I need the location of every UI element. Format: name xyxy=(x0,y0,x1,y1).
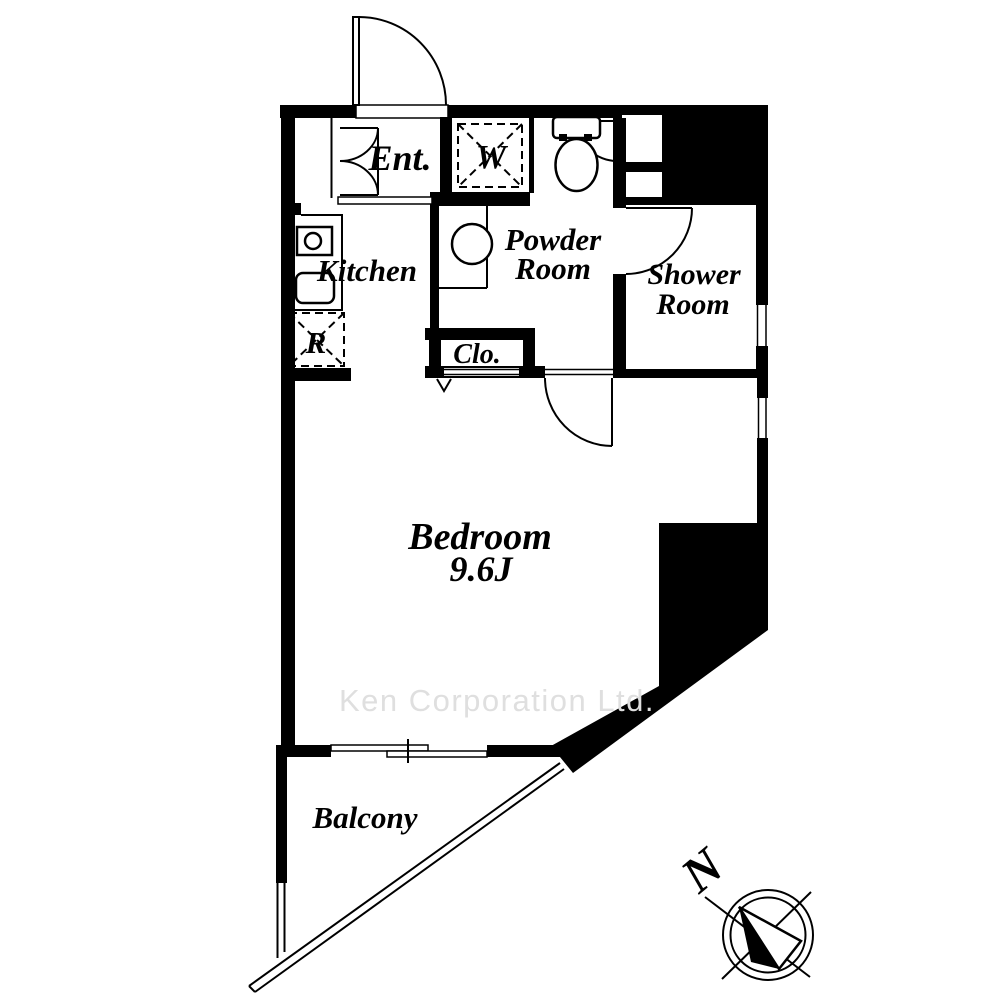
wall-bedroom-bottom-left xyxy=(280,745,331,757)
wall-right-shower-low xyxy=(756,346,768,378)
room-label-kitchen: Kitchen xyxy=(316,253,417,288)
pipe-space-notch-2 xyxy=(622,172,662,197)
watermark: Ken Corporation Ltd. xyxy=(339,683,655,718)
north-label: N xyxy=(669,836,735,904)
wall-kitchen-bottom xyxy=(281,368,351,381)
room-label-bedroom-size: 9.6J xyxy=(450,549,514,589)
toilet-icon xyxy=(553,117,600,191)
wall-powder-shower-bottom xyxy=(613,274,626,366)
wall-bedroom-top-right xyxy=(626,369,768,378)
room-label-fridge: R xyxy=(305,325,327,360)
floor-plan-page: Ken Corporation Ltd. Ent. W Kitchen R Po… xyxy=(0,0,1000,1000)
entrance-threshold xyxy=(356,105,448,118)
wall-powder-left xyxy=(430,192,439,335)
wall-powder-bottom-stub xyxy=(535,366,545,378)
wall-diagonal-corner xyxy=(551,523,768,773)
entrance-step xyxy=(338,197,432,204)
room-label-balcony: Balcony xyxy=(311,800,417,835)
wall-left xyxy=(281,105,295,757)
room-label-washer: W xyxy=(476,139,509,176)
wall-kitchen-top-stub xyxy=(281,203,301,215)
pipe-space-notch-1 xyxy=(622,115,662,162)
wall-washer-right-thin xyxy=(529,117,534,193)
compass-rose: N xyxy=(669,836,813,980)
entrance-door-arc xyxy=(359,17,446,105)
wall-right-bedroom-upper xyxy=(757,378,768,398)
entrance-door-leaf xyxy=(353,17,359,105)
wall-washer-left xyxy=(440,117,452,193)
wall-bedroom-bottom-right xyxy=(487,745,563,757)
room-label-shower-2: Room xyxy=(655,288,729,321)
room-label-powder-2: Room xyxy=(514,251,591,286)
balcony-sliding-door xyxy=(331,739,487,763)
wall-right-shower xyxy=(756,205,768,305)
wall-balcony-left xyxy=(276,745,287,883)
wall-bedroom-top-stub xyxy=(613,366,626,378)
wall-under-washer xyxy=(432,192,530,206)
room-labels: Ent. W Kitchen R Powder Room Shower Room… xyxy=(305,138,741,835)
stove-burner-icon xyxy=(305,233,321,249)
floor-plan-svg: Ken Corporation Ltd. Ent. W Kitchen R Po… xyxy=(0,0,1000,1000)
powder-door-arc xyxy=(545,378,612,446)
balcony-railing xyxy=(249,763,564,992)
wall-right-bedroom-lower xyxy=(757,438,768,523)
room-label-shower-1: Shower xyxy=(647,258,741,291)
closet-door-marker xyxy=(437,379,451,391)
room-label-entrance: Ent. xyxy=(367,138,431,178)
room-label-closet: Clo. xyxy=(453,339,500,370)
washbasin-icon xyxy=(438,206,492,288)
wall-powder-shower-top xyxy=(613,118,626,208)
